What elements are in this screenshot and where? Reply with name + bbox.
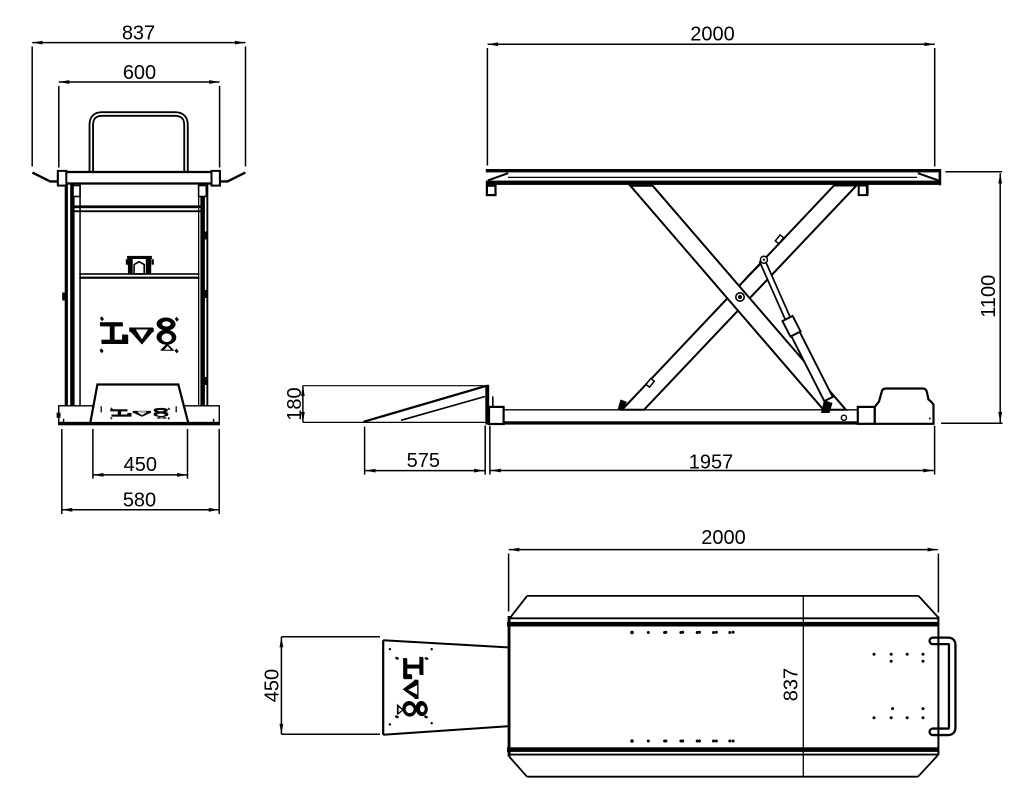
svg-text:580: 580 bbox=[123, 489, 156, 511]
svg-text:837: 837 bbox=[781, 668, 803, 701]
svg-text:575: 575 bbox=[407, 450, 440, 472]
svg-text:1100: 1100 bbox=[978, 275, 1000, 318]
svg-text:2000: 2000 bbox=[701, 527, 746, 549]
svg-text:1957: 1957 bbox=[689, 451, 734, 473]
svg-text:450: 450 bbox=[262, 669, 284, 702]
svg-text:837: 837 bbox=[122, 23, 155, 45]
svg-text:2000: 2000 bbox=[690, 24, 735, 46]
svg-text:450: 450 bbox=[124, 454, 157, 476]
svg-text:180: 180 bbox=[284, 387, 306, 420]
svg-text:600: 600 bbox=[123, 62, 156, 84]
